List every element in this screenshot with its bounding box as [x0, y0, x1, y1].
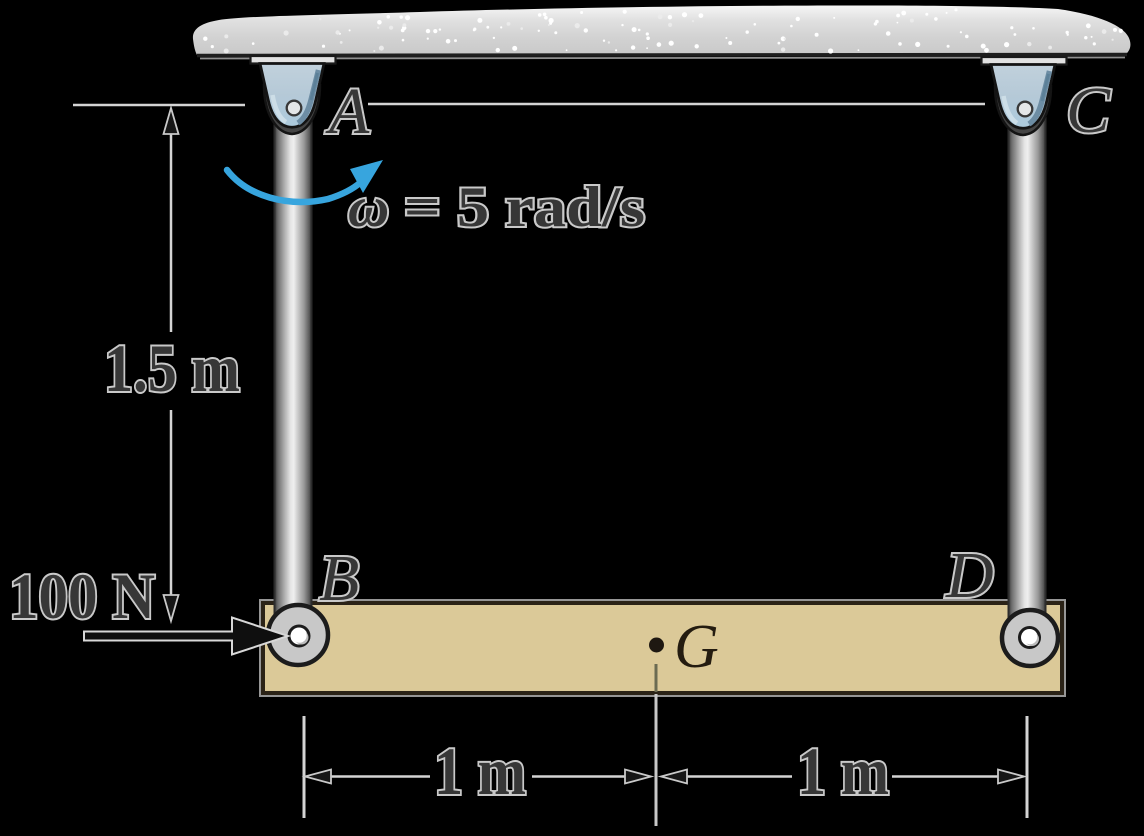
svg-text:A: A — [325, 75, 370, 148]
svg-text:G: G — [674, 613, 719, 681]
svg-text:1 m: 1 m — [797, 733, 889, 809]
svg-text:C: C — [1066, 74, 1111, 147]
svg-text:1.5 m: 1.5 m — [104, 330, 240, 406]
svg-text:ω: ω — [348, 176, 389, 239]
svg-text:D: D — [945, 539, 994, 612]
svg-text:100 N: 100 N — [9, 561, 155, 633]
svg-text:= 5 rad/s: = 5 rad/s — [404, 176, 645, 239]
svg-text:B: B — [319, 542, 359, 615]
svg-text:1 m: 1 m — [434, 733, 526, 809]
